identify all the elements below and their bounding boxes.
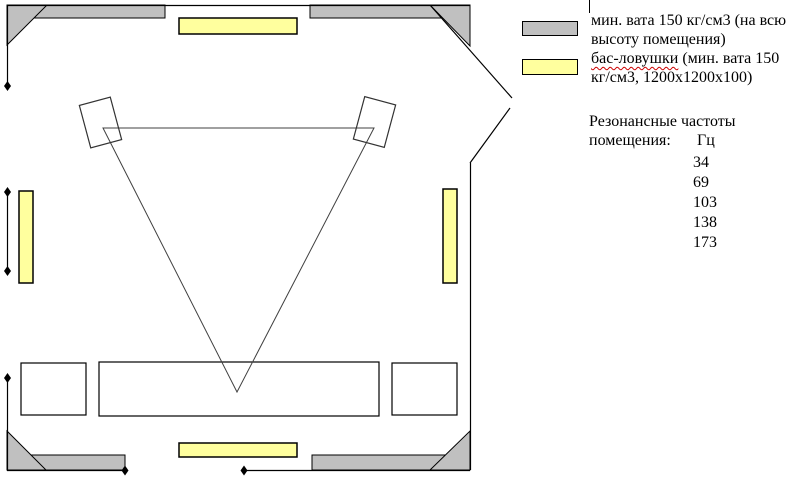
frequency-list: 34 69 103 138 173 [693,153,717,253]
resonance-title-line2: помещения:Гц [589,131,736,150]
seat-right [392,363,457,415]
diamond-marker [241,466,248,476]
legend-label-bass-trap: бас-ловушки (мин. вата 150 кг/см3, 1200x… [591,49,797,87]
speaker-left [79,97,121,148]
diamond-marker [4,266,11,276]
frequency-value: 103 [693,193,717,213]
bass-trap-right [443,189,457,283]
frequency-value: 34 [693,153,717,173]
bass-trap-bottom [179,443,297,457]
resonance-title-word: помещения: [589,132,671,149]
frequency-value: 138 [693,213,717,233]
resonance-title-line1: Резонансные частоты [589,112,736,131]
bass-trap-left [19,191,33,283]
frequency-value: 69 [693,173,717,193]
resonance-block: Резонансные частоты помещения:Гц [589,112,736,150]
resonance-unit: Гц [697,131,715,150]
seat-left [21,363,86,415]
bass-trap-top [179,18,297,34]
diamond-marker [4,81,11,91]
legend-swatch-bass-trap [522,59,578,75]
bass-trap-term: бас-ловушки [591,50,678,67]
diamond-marker [4,187,11,197]
acoustic-room-plan: мин. вата 150 кг/см3 (на всю высоту поме… [0,0,804,477]
mineral-wool-top-left-corner [7,5,47,45]
mineral-wool-bottom-left-corner [7,431,46,470]
wall-right-chamfer [470,108,510,163]
legend-swatch-mineral-wool [522,21,578,36]
speaker-right [353,97,395,148]
listening-triangle [103,128,374,392]
legend-label-mineral-wool: мин. вата 150 кг/см3 (на всю высоту поме… [591,11,797,49]
mineral-wool-top-right-bar [310,5,442,18]
wall-top-right-chamfer [430,5,512,98]
mineral-wool-bottom-right-corner [430,431,470,470]
diamond-marker [4,373,11,383]
cursor-tick [589,0,590,13]
frequency-value: 173 [693,233,717,253]
room-diagram [0,0,520,477]
